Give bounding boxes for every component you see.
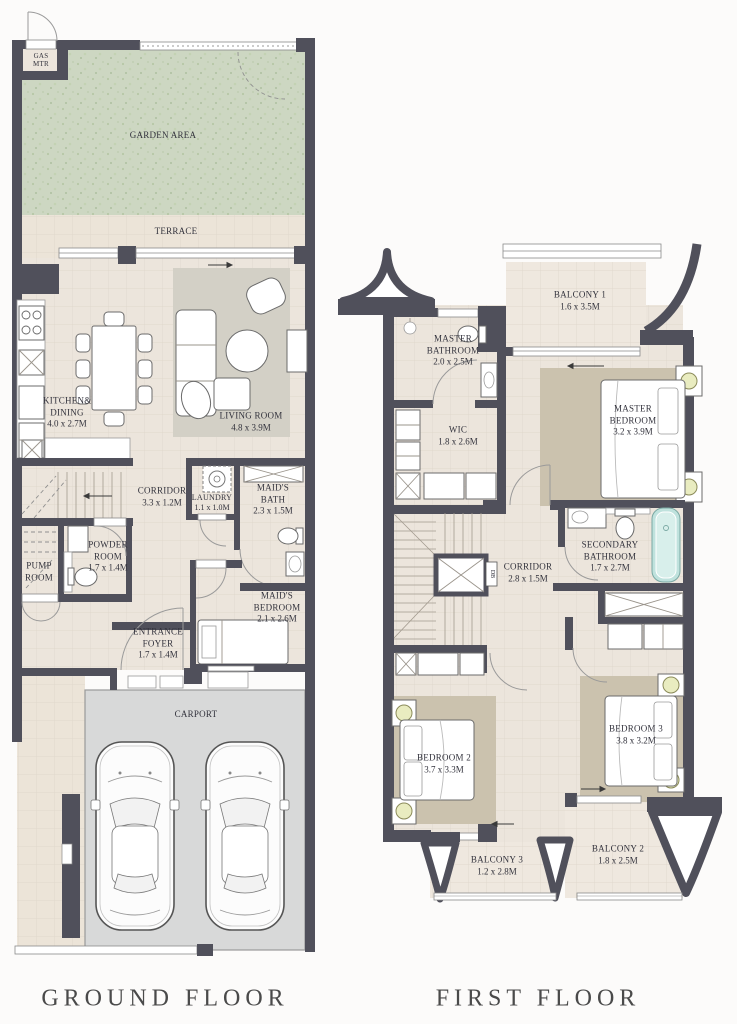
entry-mat xyxy=(208,672,248,688)
room-label-master-bath: MASTER BATHROOM 2.0 x 2.5M xyxy=(422,334,484,369)
room-label-powder: POWDER ROOM 1.7 x 1.4M xyxy=(85,540,131,575)
car xyxy=(91,742,179,930)
room-label-secondary-bath: SECONDARY BATHROOM 1.7 x 2.7M xyxy=(576,540,644,575)
bedroom3-closets xyxy=(608,624,683,649)
linen-closet xyxy=(605,593,683,616)
balustrade xyxy=(434,893,556,900)
side-table xyxy=(287,330,307,372)
coffee-table xyxy=(226,330,268,372)
maids-bed xyxy=(198,620,288,664)
toilet-tank xyxy=(68,568,74,585)
room-label-wic: WIC 1.8 x 2.6M xyxy=(418,424,498,447)
ceiling-light-icon xyxy=(404,322,416,334)
bathtub-icon xyxy=(652,508,680,582)
room-label-master-bedroom: MASTER BEDROOM 3.2 x 3.9M xyxy=(601,404,665,439)
room-label-maids-bedroom: MAID'S BEDROOM 2.1 x 2.6M xyxy=(246,591,308,626)
room-label-laundry: LAUNDRY 1.1 x 1.0M xyxy=(186,493,238,513)
db-panel-label: DB xyxy=(487,570,495,578)
toilet-tank xyxy=(615,509,635,516)
car xyxy=(201,742,289,930)
room-label-balcony1: BALCONY 1 1.6 x 3.5M xyxy=(540,289,620,312)
room-label-maids-bath: MAID'S BATH 2.3 x 1.5M xyxy=(250,483,296,518)
room-label-gas-meter: GAS MTR xyxy=(28,52,54,68)
decorative-spire xyxy=(343,252,431,301)
toilet-icon xyxy=(616,517,634,539)
floorplan-page: GAS MTR GARDEN AREA TERRACE KITCHEN& DIN… xyxy=(0,0,737,1024)
room-label-bedroom3: BEDROOM 3 3.8 x 3.2M xyxy=(596,723,676,746)
stove-icon xyxy=(19,306,44,340)
entry-mat xyxy=(160,676,183,688)
room-label-kitchen-dining: KITCHEN& DINING 4.0 x 2.7M xyxy=(43,396,91,431)
room-label-living: LIVING ROOM 4.8 x 3.9M xyxy=(206,410,296,433)
room-label-balcony3: BALCONY 3 1.2 x 2.8M xyxy=(457,854,537,877)
lamp-icon xyxy=(396,803,412,819)
room-label-carport: CARPORT xyxy=(151,709,241,721)
balustrade xyxy=(577,893,682,900)
toilet-icon xyxy=(278,528,298,544)
bedroom2-closets xyxy=(396,653,484,675)
first-floor-caption: FIRST FLOOR xyxy=(436,986,641,1013)
washing-machine-icon xyxy=(203,466,231,492)
lamp-icon xyxy=(396,705,412,721)
room-label-corridor-first: CORRIDOR 2.8 x 1.5M xyxy=(488,561,568,584)
room-label-bedroom2: BEDROOM 2 3.7 x 3.3M xyxy=(404,752,484,775)
pillow xyxy=(654,744,672,780)
pillow xyxy=(658,444,678,490)
room-label-garden: GARDEN AREA xyxy=(118,130,208,142)
lamp-icon xyxy=(663,677,679,693)
room-label-balcony2: BALCONY 2 1.8 x 2.5M xyxy=(578,843,658,866)
room-label-foyer: ENTRANCE FOYER 1.7 x 1.4M xyxy=(129,627,187,662)
room-label-pump: PUMP ROOM xyxy=(22,560,56,583)
floorplan-drawing xyxy=(0,0,737,1024)
ground-floor-caption: GROUND FLOOR xyxy=(41,986,288,1013)
stair-void-box xyxy=(436,556,486,594)
ottoman xyxy=(214,378,250,410)
room-label-terrace: TERRACE xyxy=(136,226,216,238)
entry-mat xyxy=(128,676,156,688)
